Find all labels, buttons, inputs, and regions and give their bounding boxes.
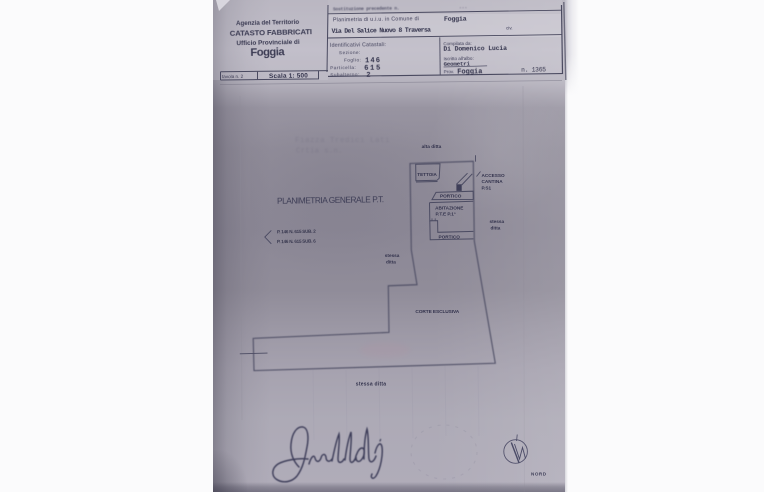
- svg-text:Via Del Salice Nuovo 8 Travers: Via Del Salice Nuovo 8 Traversa: [332, 27, 432, 35]
- svg-text:P.T.E P.1°: P.T.E P.1°: [436, 212, 456, 217]
- svg-text:alta ditta: alta ditta: [422, 144, 442, 150]
- svg-text:...: ...: [459, 5, 467, 10]
- svg-text:CORTE ESCLUSIVA: CORTE ESCLUSIVA: [415, 309, 459, 315]
- svg-text:PORTICO: PORTICO: [439, 234, 461, 239]
- svg-text:Prov.: Prov.: [444, 69, 454, 74]
- svg-text:Planimetria di u.i.u. in Comun: Planimetria di u.i.u. in Comune di: [333, 16, 419, 23]
- svg-text:Foglio:: Foglio:: [344, 57, 361, 62]
- svg-text:Sezione:: Sezione:: [339, 50, 361, 55]
- svg-text:Crtia s.n.: Crtia s.n.: [296, 148, 343, 156]
- svg-text:NORD: NORD: [531, 472, 547, 477]
- svg-text:ditta: ditta: [491, 226, 501, 231]
- svg-text:Subalterno:: Subalterno:: [330, 72, 360, 77]
- svg-text:tavola n. 2: tavola n. 2: [222, 74, 244, 79]
- svg-text:Sostituzione precedente n.: Sostituzione precedente n.: [333, 6, 400, 13]
- svg-text:stessa: stessa: [385, 253, 400, 258]
- svg-text:2: 2: [366, 72, 370, 80]
- svg-text:P.S1: P.S1: [482, 186, 492, 191]
- svg-text:ABITAZIONE: ABITAZIONE: [435, 205, 463, 210]
- svg-text:stessa ditta: stessa ditta: [356, 382, 387, 388]
- svg-text:civ.: civ.: [506, 25, 513, 30]
- svg-text:Di Domenico Lucia: Di Domenico Lucia: [443, 45, 507, 53]
- svg-text:Scala 1: 500: Scala 1: 500: [269, 72, 308, 80]
- svg-text:ACCESSO: ACCESSO: [482, 173, 506, 178]
- svg-text:Foggia: Foggia: [457, 68, 483, 76]
- svg-text:ditta: ditta: [386, 260, 396, 265]
- svg-text:n. 1365: n. 1365: [521, 66, 546, 73]
- svg-text:Particella:: Particella:: [330, 65, 356, 70]
- svg-text:Fiazza Tredici Lati: Fiazza Tredici Lati: [295, 137, 390, 145]
- svg-text:Foggia: Foggia: [444, 16, 467, 23]
- svg-text:P. 146 N. 615 SUB. 6: P. 146 N. 615 SUB. 6: [277, 239, 316, 245]
- svg-text:TETTOIA: TETTOIA: [417, 172, 437, 177]
- svg-text:P. 146 N. 615 SUB. 2: P. 146 N. 615 SUB. 2: [277, 229, 316, 235]
- svg-text:CANTINA: CANTINA: [482, 179, 504, 184]
- svg-text:Agenzia del Territorio: Agenzia del Territorio: [236, 19, 299, 27]
- svg-text:PLANIMETRIA GENERALE P.T.: PLANIMETRIA GENERALE P.T.: [277, 194, 384, 206]
- svg-text:CATASTO FABBRICATI: CATASTO FABBRICATI: [230, 27, 312, 38]
- svg-text:Identificativi Catastali:: Identificativi Catastali:: [330, 42, 387, 49]
- svg-text:stessa: stessa: [490, 219, 505, 224]
- svg-text:Foggia: Foggia: [250, 46, 285, 59]
- svg-text:PORTICO: PORTICO: [440, 194, 462, 199]
